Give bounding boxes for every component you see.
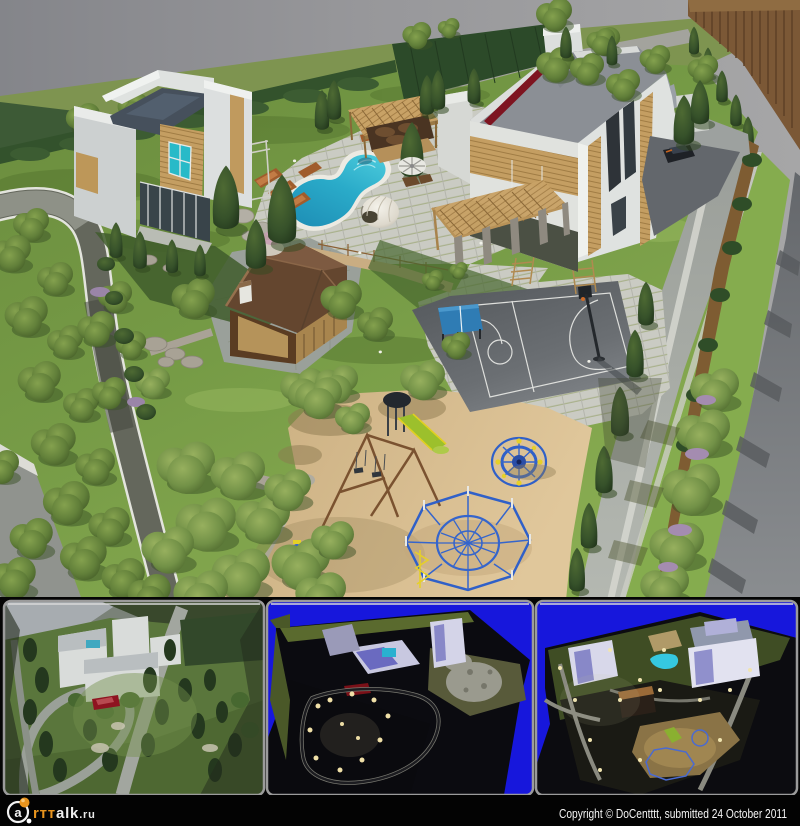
svg-text:a: a (14, 805, 22, 820)
svg-text:Copyright © DoCentttt, submitt: Copyright © DoCentttt, submitted 24 Octo… (559, 807, 787, 821)
